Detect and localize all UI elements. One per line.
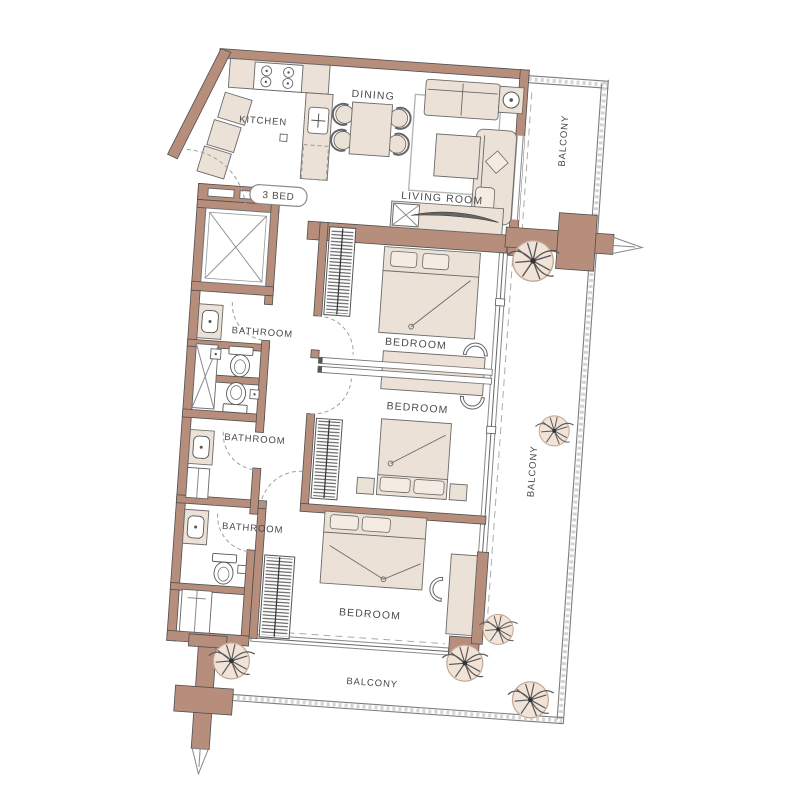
stove-icon bbox=[253, 62, 303, 92]
chair bbox=[463, 342, 488, 356]
nightstand bbox=[449, 484, 467, 501]
linen-closet bbox=[179, 589, 212, 633]
nightstand bbox=[356, 477, 374, 494]
label-bedroom-3: BEDROOM bbox=[339, 606, 402, 622]
label-dining: DINING bbox=[351, 88, 395, 103]
bedroom-2 bbox=[311, 414, 471, 509]
sink-icon bbox=[182, 509, 208, 545]
palm-plant-icon bbox=[506, 680, 554, 719]
bedroom-1 bbox=[316, 227, 502, 411]
service-shaft bbox=[208, 188, 234, 198]
dining-table bbox=[349, 102, 393, 157]
chair bbox=[429, 577, 443, 602]
floor-plan-canvas: KITCHEN DINING LIVING ROOM BEDROOM BEDRO… bbox=[0, 0, 800, 800]
label-bathroom-3: BATHROOM bbox=[222, 521, 284, 536]
elevator bbox=[201, 208, 271, 286]
unit-type-badge: 3 BED bbox=[249, 184, 307, 207]
label-balcony-lower: BALCONY bbox=[526, 445, 541, 497]
living-room bbox=[390, 77, 524, 235]
label-balcony-bottom: BALCONY bbox=[346, 676, 398, 691]
toilet-icon bbox=[227, 346, 253, 378]
sink-icon bbox=[188, 429, 214, 465]
label-bathroom-1: BATHROOM bbox=[231, 325, 293, 340]
desk bbox=[446, 554, 478, 636]
coffee-table bbox=[434, 134, 481, 179]
label-balcony-upper: BALCONY bbox=[557, 115, 572, 167]
toilet-icon bbox=[211, 553, 237, 585]
toilet-icon bbox=[223, 382, 249, 414]
palm-plant-icon bbox=[534, 415, 574, 448]
wardrobe bbox=[324, 227, 356, 317]
wardrobe bbox=[311, 418, 343, 500]
wardrobe bbox=[259, 555, 295, 639]
label-bedroom-2: BEDROOM bbox=[386, 400, 449, 416]
bedroom-3 bbox=[259, 507, 480, 651]
dining bbox=[330, 101, 411, 158]
floor-plan: KITCHEN DINING LIVING ROOM BEDROOM BEDRO… bbox=[125, 45, 654, 800]
chair bbox=[460, 396, 485, 410]
unit-type-badge-label: 3 BED bbox=[262, 190, 295, 203]
label-bathroom-2: BATHROOM bbox=[224, 432, 286, 447]
sink-icon bbox=[197, 304, 223, 340]
label-kitchen: KITCHEN bbox=[239, 114, 288, 128]
label-bedroom-1: BEDROOM bbox=[385, 336, 448, 352]
